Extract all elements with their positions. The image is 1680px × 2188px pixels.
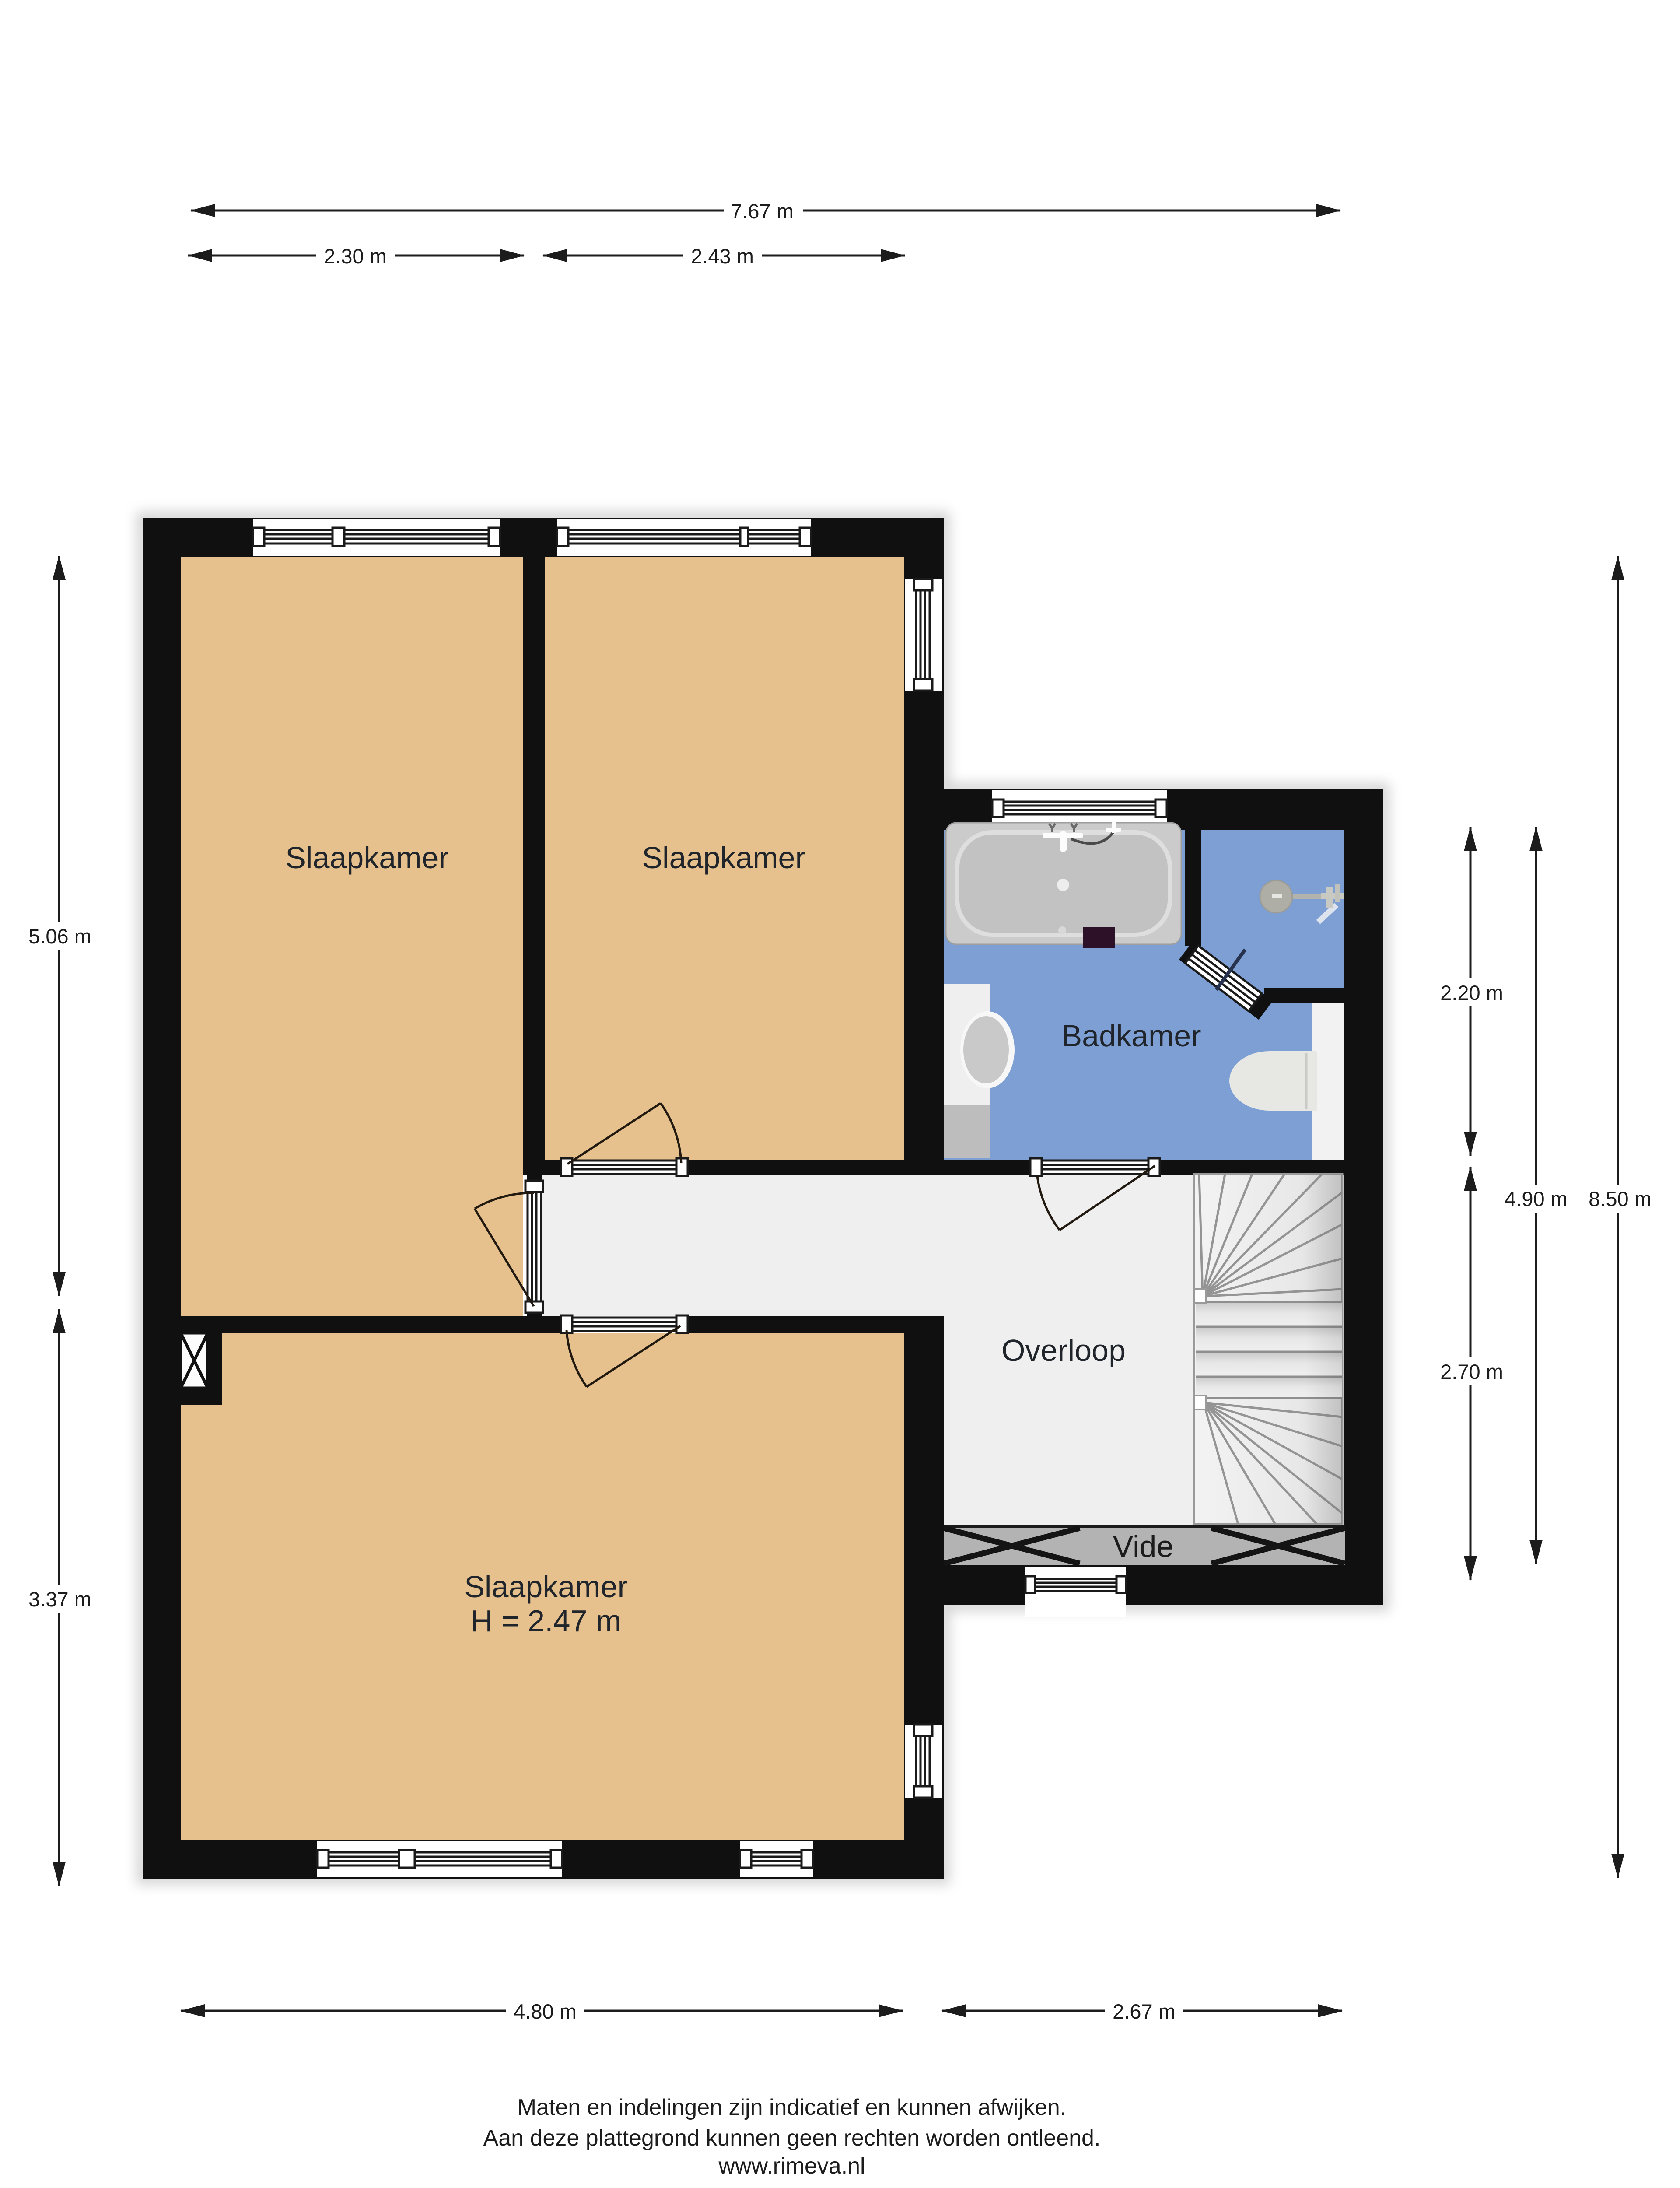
svg-text:2.70 m: 2.70 m bbox=[1440, 1360, 1503, 1383]
svg-text:2.43 m: 2.43 m bbox=[691, 245, 754, 268]
svg-text:4.90 m: 4.90 m bbox=[1505, 1187, 1568, 1210]
svg-text:7.67 m: 7.67 m bbox=[731, 200, 794, 223]
svg-text:www.rimeva.nl: www.rimeva.nl bbox=[718, 2153, 865, 2179]
svg-text:Overloop: Overloop bbox=[1001, 1333, 1126, 1367]
svg-text:5.06 m: 5.06 m bbox=[28, 925, 91, 948]
svg-text:8.50 m: 8.50 m bbox=[1589, 1187, 1652, 1210]
svg-text:3.37 m: 3.37 m bbox=[28, 1588, 91, 1611]
svg-text:Slaapkamer: Slaapkamer bbox=[642, 841, 805, 875]
svg-text:Slaapkamer: Slaapkamer bbox=[464, 1570, 628, 1604]
svg-text:4.80 m: 4.80 m bbox=[514, 2000, 577, 2023]
svg-text:H = 2.47 m: H = 2.47 m bbox=[471, 1604, 621, 1638]
svg-text:2.30 m: 2.30 m bbox=[324, 245, 387, 268]
svg-text:Maten en indelingen zijn indic: Maten en indelingen zijn indicatief en k… bbox=[518, 2095, 1067, 2120]
svg-text:2.20 m: 2.20 m bbox=[1440, 981, 1503, 1004]
svg-text:Slaapkamer: Slaapkamer bbox=[285, 841, 449, 875]
svg-text:Vide: Vide bbox=[1113, 1529, 1174, 1564]
svg-text:Aan deze plattegrond kunnen ge: Aan deze plattegrond kunnen geen rechten… bbox=[483, 2125, 1101, 2151]
svg-text:Badkamer: Badkamer bbox=[1061, 1019, 1201, 1053]
svg-text:2.67 m: 2.67 m bbox=[1113, 2000, 1176, 2023]
